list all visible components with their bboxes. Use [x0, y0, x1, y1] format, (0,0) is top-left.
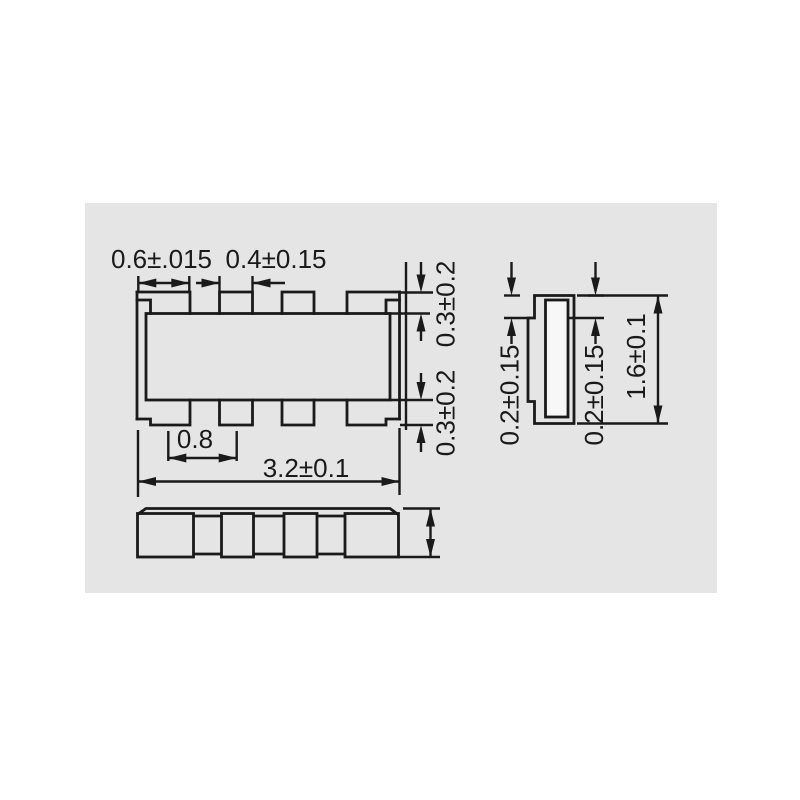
side-pad-1	[138, 514, 194, 558]
bottom-pad-3	[282, 400, 314, 425]
top-pad-4	[347, 292, 400, 314]
arrow-down-icon	[507, 278, 516, 296]
arrow-left-icon	[253, 279, 271, 288]
arrow-left-icon	[138, 279, 156, 288]
bottom-pad-1	[137, 400, 190, 425]
arrow-left-icon	[138, 477, 156, 486]
arrow-down-icon	[426, 539, 435, 557]
dim-terminal-pitch-label: 0.8	[177, 424, 213, 454]
arrow-down-icon	[417, 382, 426, 400]
top-right-corner-notch	[386, 300, 400, 314]
end-view-body-face	[546, 300, 569, 417]
top-left-corner-notch	[137, 300, 151, 314]
arrow-down-icon	[417, 275, 426, 293]
arrow-down-icon	[591, 278, 600, 296]
arrow-right-icon	[219, 454, 237, 463]
side-pad-4	[345, 514, 399, 558]
bottom-pad-2	[220, 400, 253, 425]
dim-body-length-label: 3.2±0.1	[263, 453, 350, 483]
dim-terminal-thickness-left-label: 0.2±0.15	[495, 344, 525, 445]
bottom-pad-4	[347, 400, 400, 425]
side-pad-3	[284, 514, 317, 558]
dim-inner-terminal-width-label: 0.4±0.15	[225, 244, 326, 274]
side-view	[138, 509, 441, 558]
dimensional-drawing: 0.6±.015 0.4±0.15 0.8 3.2±0.1 0.	[85, 203, 717, 593]
arrow-up-icon	[417, 425, 426, 443]
arrow-up-icon	[426, 509, 435, 527]
arrow-up-icon	[507, 318, 516, 336]
dim-inner-terminal-width: 0.4±0.15	[196, 244, 327, 291]
arrow-up-icon	[417, 314, 426, 332]
dim-terminal-protrusion-bottom-label: 0.3±0.2	[431, 370, 461, 457]
arrow-right-icon	[382, 477, 400, 486]
arrow-right-icon	[202, 279, 220, 288]
dim-end-terminal-width-label: 0.6±.015	[111, 244, 212, 274]
top-pad-1	[137, 292, 190, 314]
side-pad-2	[222, 514, 254, 558]
body-outline	[146, 314, 390, 401]
arrow-down-icon	[654, 406, 663, 424]
dim-body-width-label: 1.6±0.1	[621, 313, 651, 400]
end-view	[528, 296, 574, 424]
dim-terminal-thickness-left: 0.2±0.15	[495, 262, 532, 446]
dim-terminal-thickness-right-label: 0.2±0.15	[579, 344, 609, 445]
arrow-right-icon	[171, 279, 189, 288]
top-pad-3	[282, 292, 314, 314]
dim-terminal-protrusion-top-label: 0.3±0.2	[431, 261, 461, 348]
dim-terminal-pitch: 0.8	[168, 424, 236, 463]
top-pad-2	[220, 292, 253, 314]
arrow-up-icon	[654, 296, 663, 314]
top-view	[137, 292, 400, 425]
drawing-panel: 0.6±.015 0.4±0.15 0.8 3.2±0.1 0.	[85, 203, 717, 593]
arrow-up-icon	[591, 318, 600, 336]
arrow-left-icon	[168, 454, 186, 463]
